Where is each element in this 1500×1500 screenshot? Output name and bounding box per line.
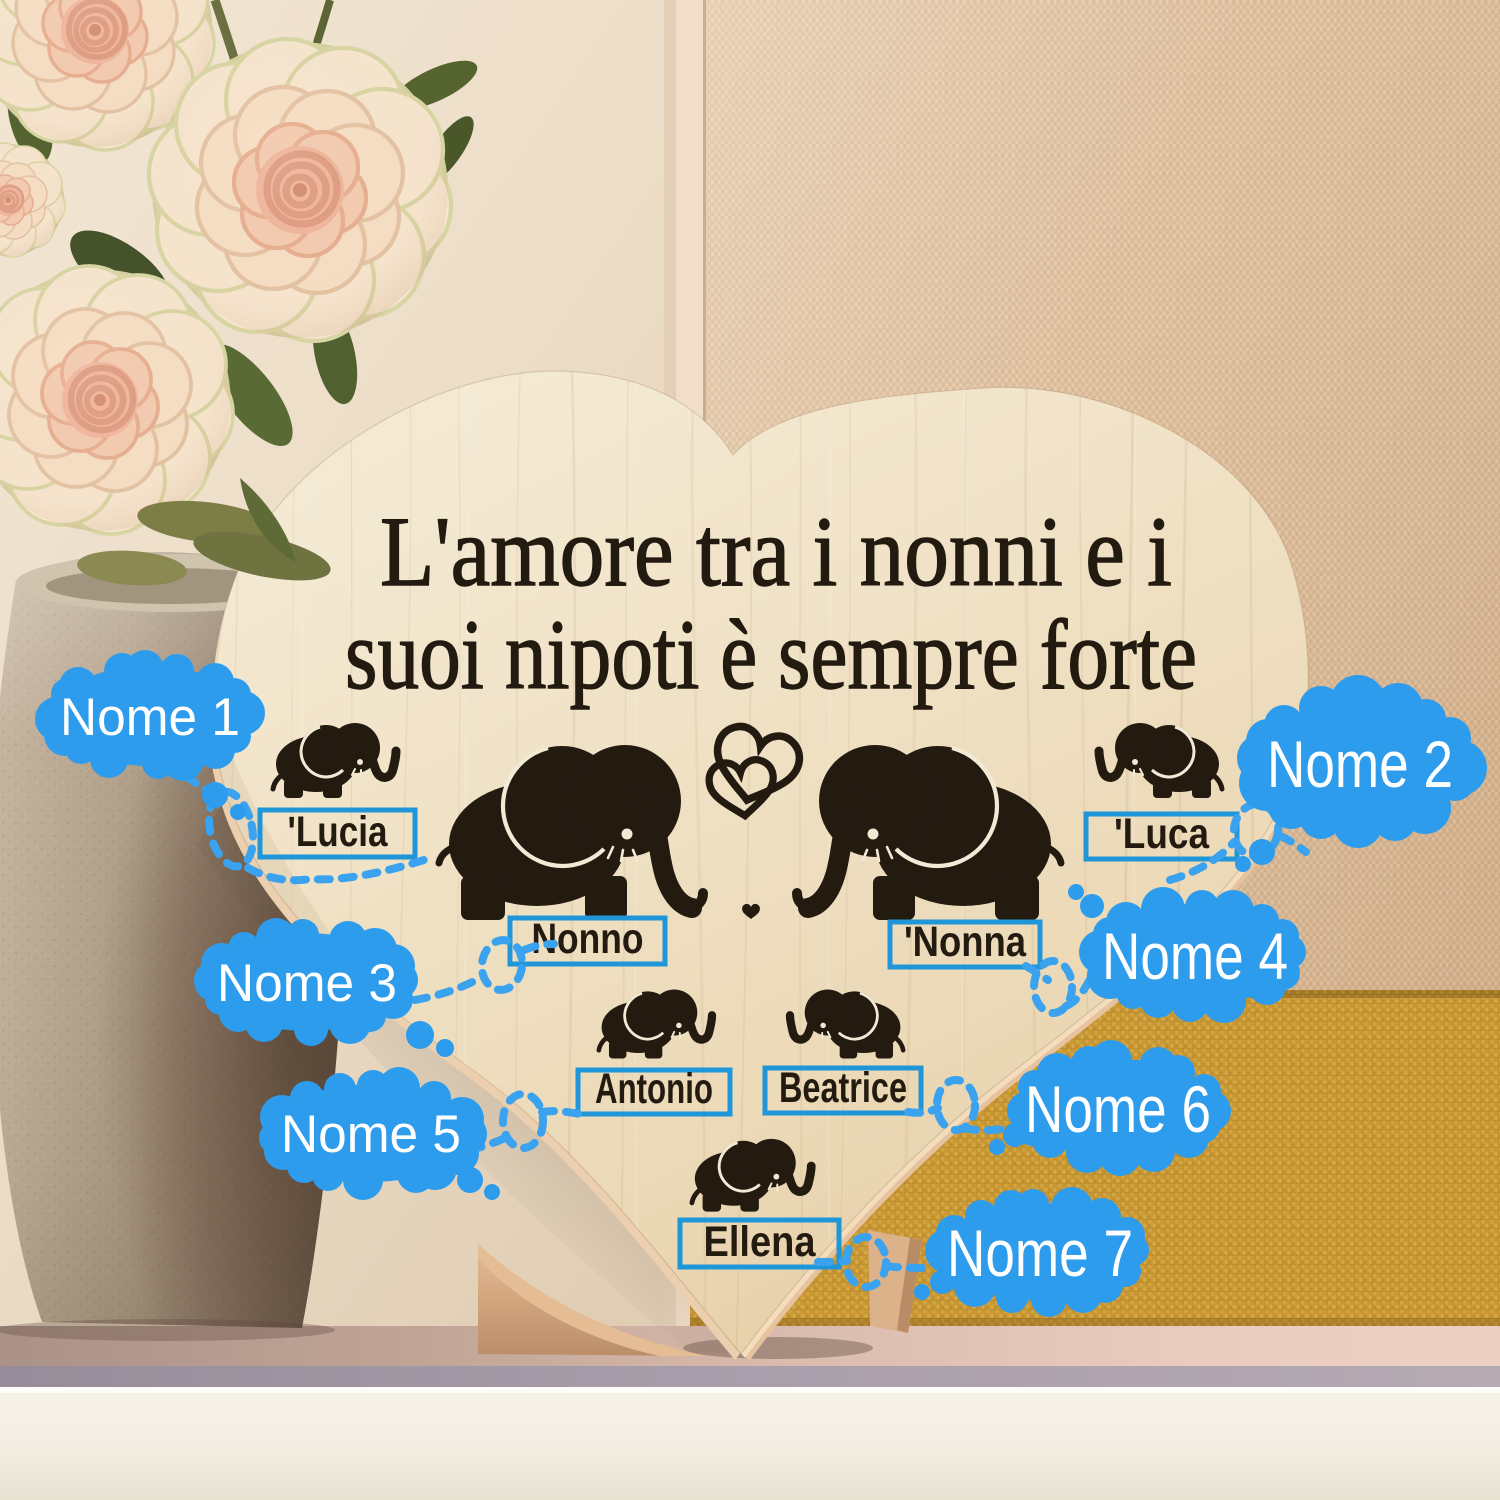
svg-text:'Nonna: 'Nonna: [904, 918, 1027, 966]
svg-text:Nonno: Nonno: [532, 915, 644, 963]
svg-text:Nome 5: Nome 5: [281, 1105, 461, 1164]
svg-text:Nome 6: Nome 6: [1025, 1072, 1211, 1146]
svg-text:Nome 2: Nome 2: [1267, 727, 1453, 801]
svg-text:'Lucia: 'Lucia: [288, 808, 389, 856]
svg-text:Ellena: Ellena: [704, 1218, 817, 1266]
svg-text:'Luca: 'Luca: [1114, 810, 1210, 858]
svg-text:Beatrice: Beatrice: [779, 1064, 907, 1112]
svg-text:Nome 7: Nome 7: [947, 1216, 1133, 1290]
svg-text:Nome 1: Nome 1: [60, 688, 240, 747]
svg-text:Antonio: Antonio: [595, 1065, 713, 1113]
svg-text:suoi nipoti è sempre forte: suoi nipoti è sempre forte: [345, 599, 1197, 710]
svg-text:Nome 4: Nome 4: [1102, 919, 1288, 993]
svg-text:L'amore tra i nonni e i: L'amore tra i nonni e i: [380, 496, 1172, 607]
svg-text:Nome 3: Nome 3: [217, 954, 397, 1013]
